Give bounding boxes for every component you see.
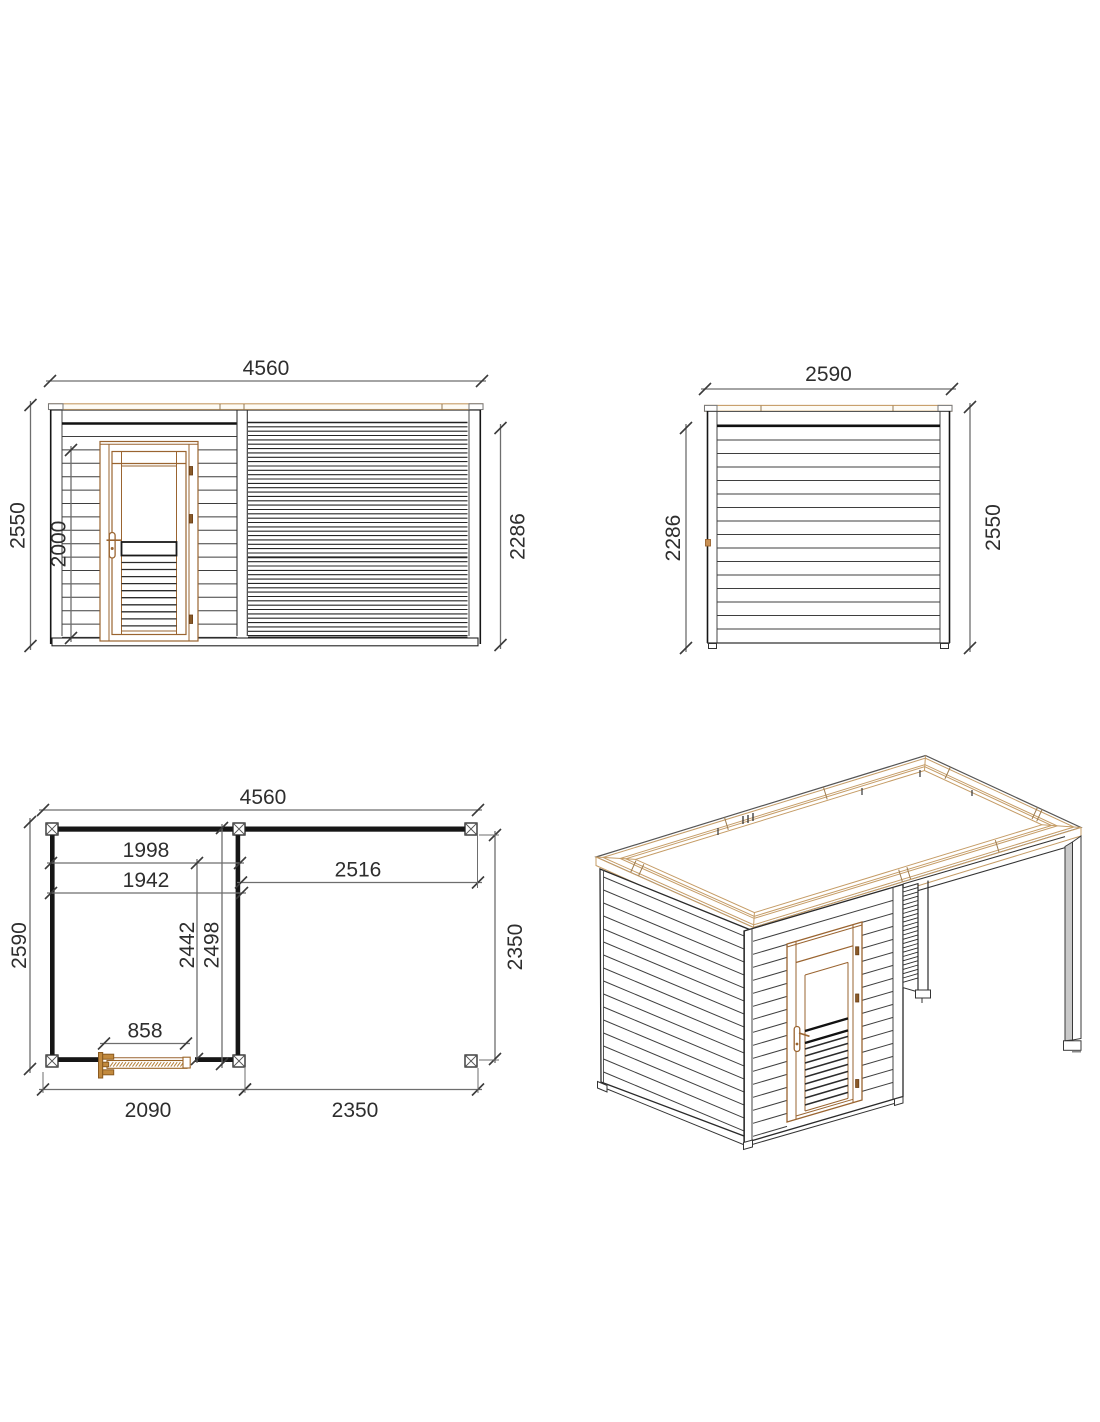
svg-text:2590: 2590 xyxy=(8,922,31,969)
svg-text:2516: 2516 xyxy=(335,859,382,882)
svg-text:2350: 2350 xyxy=(332,1099,379,1122)
svg-text:1998: 1998 xyxy=(123,839,170,862)
svg-text:2550: 2550 xyxy=(982,504,1005,551)
svg-text:2350: 2350 xyxy=(504,924,527,971)
svg-text:2550: 2550 xyxy=(7,502,30,549)
svg-text:4560: 4560 xyxy=(240,786,287,809)
svg-text:2442: 2442 xyxy=(176,922,199,969)
svg-text:2286: 2286 xyxy=(662,515,685,562)
svg-text:1942: 1942 xyxy=(123,869,170,892)
svg-text:2286: 2286 xyxy=(507,513,530,560)
svg-text:4560: 4560 xyxy=(243,357,290,380)
svg-text:2590: 2590 xyxy=(805,363,852,386)
svg-text:2090: 2090 xyxy=(125,1099,172,1122)
svg-text:2000: 2000 xyxy=(48,521,71,568)
svg-text:858: 858 xyxy=(127,1020,162,1043)
svg-text:2498: 2498 xyxy=(201,922,224,969)
